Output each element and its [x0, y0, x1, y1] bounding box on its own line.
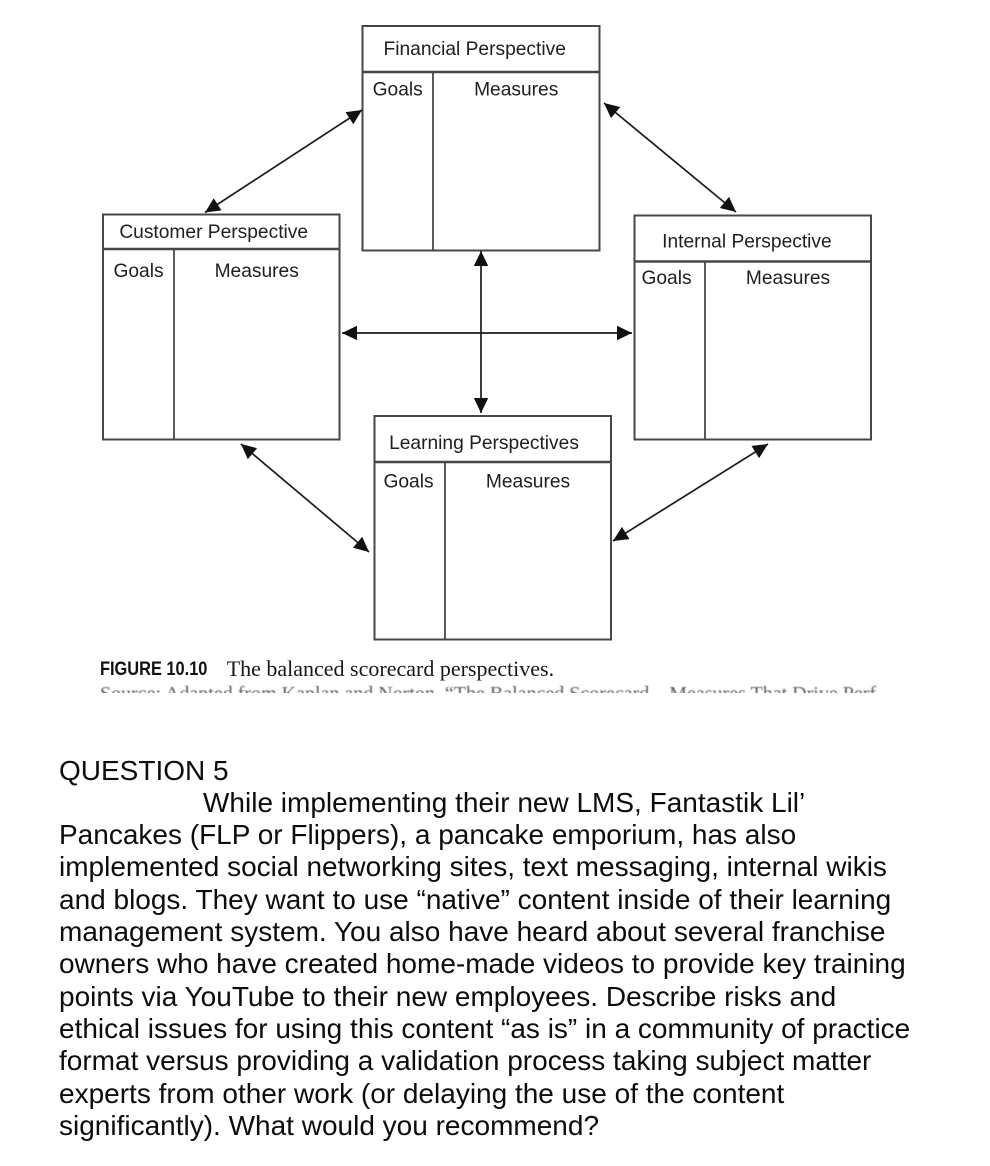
- svg-text:Measures: Measures: [746, 268, 830, 289]
- svg-text:Internal Perspective: Internal Perspective: [662, 232, 832, 253]
- svg-text:Financial Perspective: Financial Perspective: [384, 39, 566, 60]
- svg-text:Goals: Goals: [641, 268, 691, 289]
- svg-text:Goals: Goals: [383, 472, 433, 493]
- svg-text:Goals: Goals: [373, 80, 423, 101]
- svg-text:Measures: Measures: [215, 261, 299, 282]
- svg-text:Goals: Goals: [113, 261, 163, 282]
- svg-text:Measures: Measures: [474, 80, 558, 101]
- svg-text:Measures: Measures: [486, 472, 570, 493]
- svg-text:Learning Perspectives: Learning Perspectives: [389, 433, 579, 454]
- svg-text:Customer Perspective: Customer Perspective: [119, 222, 308, 243]
